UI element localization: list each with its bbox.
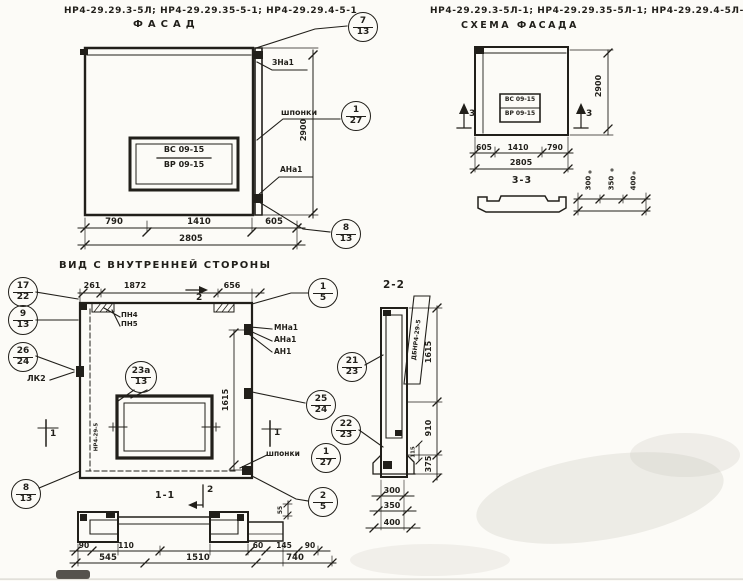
facade-label-bottom-anchor: АНа1 xyxy=(280,166,302,174)
inner-view-title: ВИД С ВНУТРЕННЕЙ СТОРОНЫ xyxy=(59,261,272,271)
inner-callout-2-5: 2 5 xyxy=(308,487,338,517)
callout-sheet: 13 xyxy=(13,320,33,330)
callout-number: 17 xyxy=(15,282,32,291)
section-1-1-dim-1510: 1510 xyxy=(186,554,210,563)
inner-dim-1872: 1872 xyxy=(124,282,146,290)
callout-number: 2 xyxy=(318,492,328,501)
schema-window-mark-top: ВС 09-15 xyxy=(505,97,535,103)
facade-dim-total: 2805 xyxy=(179,235,203,244)
callout-sheet: 23 xyxy=(336,430,356,440)
schema-title: СХЕМА ФАСАДА xyxy=(461,21,579,31)
callout-sheet: 5 xyxy=(313,293,333,303)
facade-window-mark-bottom: ВР 09-15 xyxy=(164,161,204,169)
facade-window-mark-top: ВС 09-15 xyxy=(164,146,204,154)
callout-number: 9 xyxy=(18,310,28,319)
inner-label-ana1: АНа1 xyxy=(274,336,296,344)
callout-number: 7 xyxy=(358,17,368,26)
facade-header: НР4-29.29.3-5Л; НР4-29.29.35-5-1; НР4-29… xyxy=(64,7,357,16)
section-1-1-mark-2: 2 xyxy=(207,486,213,495)
facade-dim-790: 790 xyxy=(105,218,123,227)
inner-label-an1: АН1 xyxy=(274,348,291,356)
callout-number: 8 xyxy=(21,484,31,493)
section-2-2-width-300: 300 xyxy=(384,487,401,495)
callout-number: 22 xyxy=(338,420,355,429)
inner-callout-keys-1-27: 1 27 xyxy=(311,443,341,473)
section-1-1-dim-90a: 90 xyxy=(79,542,89,550)
callout-sheet: 13 xyxy=(336,234,356,244)
inner-section-mark-2: 2 xyxy=(196,294,202,303)
callout-number: 21 xyxy=(344,357,361,366)
section-2-2-lines xyxy=(366,296,442,532)
section-1-1-dim-55: 55 xyxy=(278,506,284,514)
callout-sheet: 22 xyxy=(13,292,33,302)
facade-title: ФАСАД xyxy=(133,20,200,30)
inner-dim-1615: 1615 xyxy=(222,389,230,411)
section-2-2-title: 2-2 xyxy=(383,280,405,291)
callout-number: 25 xyxy=(313,395,330,404)
section-2-2-dim-910: 910 xyxy=(425,420,433,437)
schema-dim-605: 605 xyxy=(476,144,492,152)
schema-dim-1410: 1410 xyxy=(508,144,529,152)
schema-dim-790: 790 xyxy=(547,144,563,152)
section-1-1-dim-90b: 90 xyxy=(305,542,315,550)
facade-callout-7-13: 7 13 xyxy=(348,12,378,42)
section-1-1-dim-545: 545 xyxy=(99,554,117,563)
inner-dim-656: 656 xyxy=(224,282,241,290)
schema-section-mark-right: 3 xyxy=(586,110,592,119)
facade-callout-8-13: 8 13 xyxy=(331,219,361,249)
scan-artifacts xyxy=(0,168,743,579)
facade-label-keys: шпонки xyxy=(281,109,317,117)
callout-sheet: 5 xyxy=(313,502,333,512)
inner-label-keys: шпонки xyxy=(266,450,300,458)
schema-dim-height: 2900 xyxy=(595,75,603,97)
inner-dim-261: 261 xyxy=(84,282,101,290)
callout-sheet: 13 xyxy=(16,494,36,504)
section-1-1-dim-60: 60 xyxy=(253,542,263,550)
section-1-1-dim-740: 740 xyxy=(286,554,304,563)
inner-callout-22-23: 22 23 xyxy=(331,415,361,445)
facade-label-top-anchor: ЗНа1 xyxy=(272,59,294,67)
callout-sheet: 23 xyxy=(342,367,362,377)
section-2-2-width-350: 350 xyxy=(384,502,401,510)
inner-section-mark-1-right: 1 xyxy=(274,429,280,438)
section-1-1-title: 1-1 xyxy=(155,491,175,501)
inner-label-pn4: ПН4 xyxy=(121,312,138,319)
section-2-2-dim-115: 115 xyxy=(411,446,417,457)
inner-callout-23a-13: 23а 13 xyxy=(125,361,157,393)
callout-sheet: 27 xyxy=(346,116,366,126)
callout-number: 23а xyxy=(130,367,153,376)
schema-header: НР4-29.29.3-5Л-1; НР4-29.29.35-5Л-1; НР4… xyxy=(430,7,743,16)
callout-sheet: 27 xyxy=(316,458,336,468)
facade-dim-605: 605 xyxy=(265,218,283,227)
section-3-3-title: 3-3 xyxy=(512,176,532,186)
schema-lines xyxy=(457,47,650,215)
section-2-2-dim-375: 375 xyxy=(425,456,433,473)
callout-number: 1 xyxy=(318,283,328,292)
inner-label-lk2: ЛК2 xyxy=(27,375,46,383)
section-1-1-dim-110: 110 xyxy=(118,542,134,550)
schema-dim-total: 2805 xyxy=(510,159,532,167)
inner-callout-1-5: 1 5 xyxy=(308,278,338,308)
section-3-3-dim-300: 300 xyxy=(586,176,593,191)
section-3-3-dim-400: 400 xyxy=(631,176,638,191)
blueprint-scan: НР4-29.29.3-5Л; НР4-29.29.35-5-1; НР4-29… xyxy=(0,0,743,581)
inner-callout-8-13: 8 13 xyxy=(11,479,41,509)
callout-number: 1 xyxy=(351,106,361,115)
inner-callout-25-24: 25 24 xyxy=(306,390,336,420)
section-3-3-dim-350: 350 xyxy=(609,176,616,191)
callout-number: 8 xyxy=(341,224,351,233)
inner-callout-17-22: 17 22 xyxy=(8,277,38,307)
schema-window-mark-bottom: ВР 09-15 xyxy=(505,111,535,117)
inner-label-mna1: МНа1 xyxy=(274,324,298,332)
section-1-1-dim-145: 145 xyxy=(276,542,292,550)
inner-section-mark-1-left: 1 xyxy=(50,430,56,439)
inner-callout-26-24: 26 24 xyxy=(8,342,38,372)
facade-dim-height: 2900 xyxy=(300,119,308,141)
callout-number: 26 xyxy=(15,347,32,356)
callout-sheet: 13 xyxy=(353,27,373,37)
inner-label-side-mark: НР4-29-5 xyxy=(94,423,100,452)
drawing-linework xyxy=(0,0,743,581)
callout-sheet: 24 xyxy=(311,405,331,415)
section-2-2-dim-1615: 1615 xyxy=(425,341,433,363)
inner-label-pn5: ПН5 xyxy=(121,321,138,328)
facade-callout-keys-1-27: 1 27 xyxy=(341,101,371,131)
callout-sheet: 24 xyxy=(13,357,33,367)
schema-section-mark-left: 3 xyxy=(469,110,475,119)
section-2-2-width-400: 400 xyxy=(384,519,401,527)
inner-callout-9-13: 9 13 xyxy=(8,305,38,335)
facade-dim-1410: 1410 xyxy=(187,218,211,227)
callout-sheet: 13 xyxy=(131,377,151,387)
inner-callout-21-23: 21 23 xyxy=(337,352,367,382)
callout-number: 1 xyxy=(321,448,331,457)
